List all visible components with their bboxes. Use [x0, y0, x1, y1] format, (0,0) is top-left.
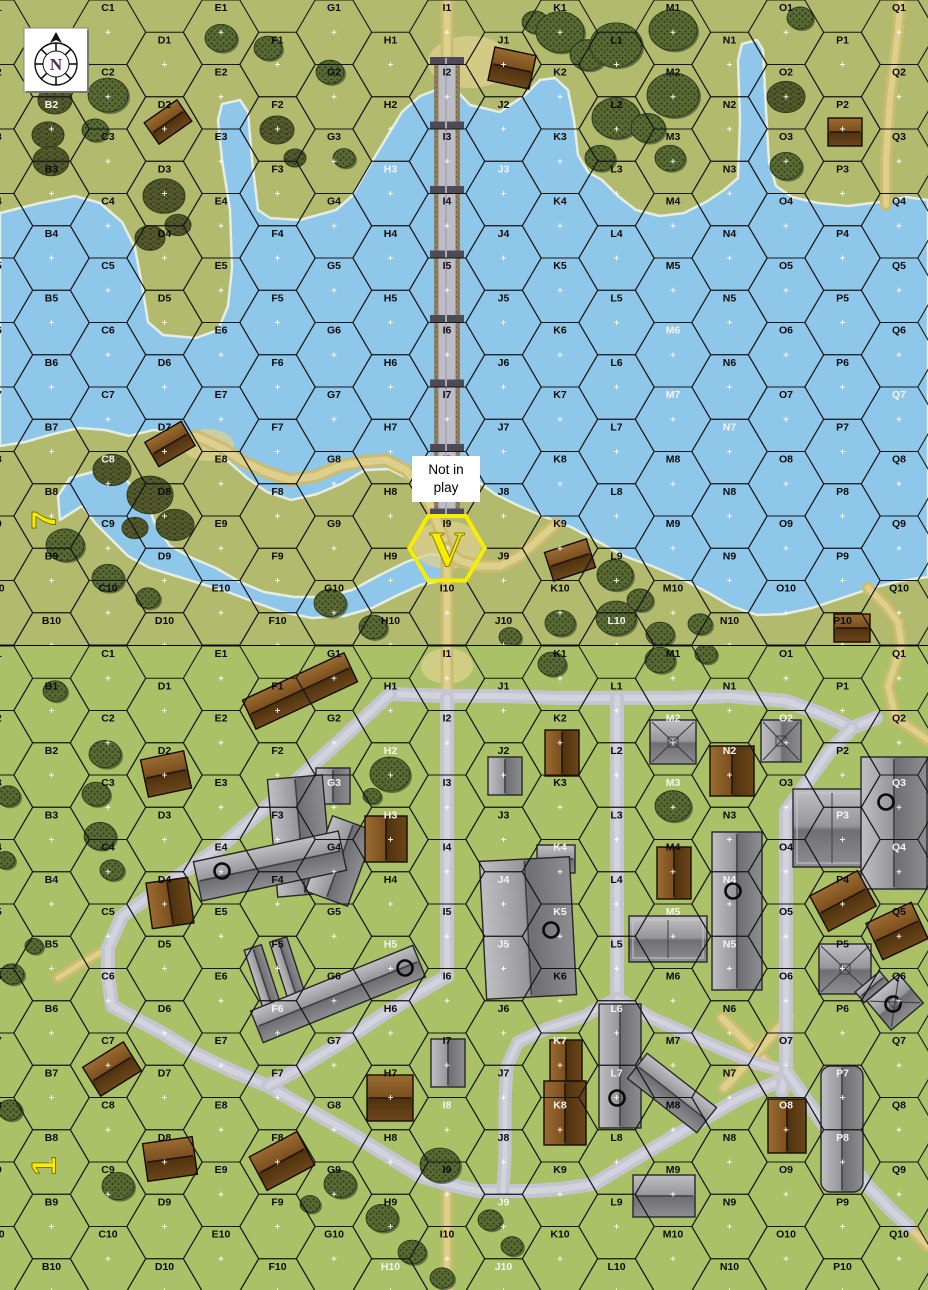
hex-label-I10: I10 — [440, 583, 455, 595]
hex-label-J6: J6 — [498, 1003, 510, 1015]
map-board-7[interactable]: A1A2A3A4A5A6A7A8A9A10B1B2B3B4B5B6B7B8B9B… — [0, 0, 928, 645]
hex-label-O10: O10 — [776, 1229, 796, 1241]
hex-label-H7: H7 — [384, 421, 398, 433]
hex-label-N2: N2 — [723, 745, 737, 757]
hex-label-C9: C9 — [101, 1164, 115, 1176]
hex-label-G5: G5 — [327, 906, 341, 918]
hex-label-J2: J2 — [498, 99, 510, 111]
hex-label-A2: A2 — [0, 67, 2, 79]
hex-label-N10: N10 — [720, 615, 739, 627]
hex-label-J4: J4 — [498, 874, 510, 886]
hex-label-A2: A2 — [0, 713, 2, 725]
hex-label-N5: N5 — [723, 938, 737, 950]
hex-label-D6: D6 — [158, 357, 172, 369]
hex-label-L9: L9 — [610, 1196, 622, 1208]
hex-label-M1: M1 — [666, 648, 681, 660]
hex-label-B2: B2 — [45, 99, 59, 111]
hex-label-J1: J1 — [498, 34, 510, 46]
hex-label-L8: L8 — [610, 1132, 622, 1144]
hex-label-K6: K6 — [553, 971, 567, 983]
hex-label-E10: E10 — [212, 583, 231, 595]
hex-label-H5: H5 — [384, 292, 398, 304]
hex-label-M8: M8 — [666, 454, 681, 466]
hex-grid — [0, 646, 928, 1290]
hex-label-N3: N3 — [723, 163, 737, 175]
hex-label-E5: E5 — [215, 906, 228, 918]
hex-label-N8: N8 — [723, 486, 737, 498]
board-number-7: 7 — [26, 511, 64, 530]
hex-label-D9: D9 — [158, 550, 172, 562]
hex-label-P1: P1 — [836, 680, 849, 692]
hex-label-C6: C6 — [101, 325, 115, 337]
hex-label-H7: H7 — [384, 1067, 398, 1079]
hex-label-D6: D6 — [158, 1003, 172, 1015]
hex-label-J3: J3 — [498, 809, 510, 821]
hex-label-C7: C7 — [101, 1035, 115, 1047]
hex-label-M2: M2 — [666, 713, 681, 725]
hex-label-O1: O1 — [779, 2, 793, 14]
hex-label-Q2: Q2 — [892, 67, 906, 79]
hex-label-A8: A8 — [0, 454, 2, 466]
hex-label-P5: P5 — [836, 938, 849, 950]
hex-label-Q4: Q4 — [892, 196, 906, 208]
wargame-map: A1A2A3A4A5A6A7A8A9A10B1B2B3B4B5B6B7B8B9B… — [0, 0, 928, 1290]
hex-label-D4: D4 — [158, 228, 172, 240]
not-in-play-label: Not in — [428, 462, 463, 477]
hex-label-A7: A7 — [0, 1035, 2, 1047]
hex-label-L4: L4 — [610, 228, 622, 240]
hex-label-P6: P6 — [836, 357, 849, 369]
hex-label-O10: O10 — [776, 583, 796, 595]
hex-label-C10: C10 — [98, 1229, 117, 1241]
hex-label-I6: I6 — [443, 325, 452, 337]
hex-label-F9: F9 — [271, 1196, 283, 1208]
hex-label-Q2: Q2 — [892, 713, 906, 725]
hex-label-O8: O8 — [779, 1100, 793, 1112]
hex-label-H1: H1 — [384, 34, 398, 46]
hex-label-C8: C8 — [101, 454, 115, 466]
hex-label-M3: M3 — [666, 131, 681, 143]
hex-label-E10: E10 — [212, 1229, 231, 1241]
hex-label-G4: G4 — [327, 196, 341, 208]
hex-label-E5: E5 — [215, 260, 228, 272]
hex-label-N2: N2 — [723, 99, 737, 111]
hex-label-K4: K4 — [553, 196, 567, 208]
hex-label-O9: O9 — [779, 518, 793, 530]
hex-label-L5: L5 — [610, 938, 622, 950]
hex-label-D5: D5 — [158, 938, 172, 950]
hex-label-P4: P4 — [836, 228, 849, 240]
hex-label-P2: P2 — [836, 99, 849, 111]
hex-label-K4: K4 — [553, 842, 567, 854]
hex-label-F7: F7 — [271, 421, 283, 433]
hex-label-M8: M8 — [666, 1100, 681, 1112]
hex-label-F9: F9 — [271, 550, 283, 562]
hex-label-J8: J8 — [498, 486, 510, 498]
hex-label-H10: H10 — [381, 1261, 400, 1273]
hex-label-O7: O7 — [779, 1035, 793, 1047]
hex-label-N8: N8 — [723, 1132, 737, 1144]
hex-label-Q9: Q9 — [892, 518, 906, 530]
hex-label-A1: A1 — [0, 2, 2, 14]
hex-label-A4: A4 — [0, 842, 2, 854]
hex-label-Q7: Q7 — [892, 389, 906, 401]
hex-label-I6: I6 — [443, 971, 452, 983]
hex-label-N6: N6 — [723, 357, 737, 369]
hex-label-M5: M5 — [666, 260, 681, 272]
hex-label-F6: F6 — [271, 1003, 283, 1015]
hex-label-B7: B7 — [45, 421, 59, 433]
hex-label-D3: D3 — [158, 809, 172, 821]
hex-label-G8: G8 — [327, 454, 341, 466]
hex-label-K6: K6 — [553, 325, 567, 337]
hex-label-P7: P7 — [836, 421, 849, 433]
hex-label-J4: J4 — [498, 228, 510, 240]
hex-label-A6: A6 — [0, 971, 2, 983]
hex-label-K9: K9 — [553, 518, 567, 530]
hex-label-C4: C4 — [101, 196, 115, 208]
hex-label-H5: H5 — [384, 938, 398, 950]
hex-label-E1: E1 — [215, 2, 228, 14]
hex-label-P4: P4 — [836, 874, 849, 886]
victory-hex-letter: V — [429, 520, 465, 576]
hex-label-O2: O2 — [779, 713, 793, 725]
hex-label-D7: D7 — [158, 421, 172, 433]
hex-label-L6: L6 — [610, 357, 622, 369]
hex-label-N7: N7 — [723, 421, 737, 433]
hex-label-N9: N9 — [723, 550, 737, 562]
hex-label-P5: P5 — [836, 292, 849, 304]
hex-label-H6: H6 — [384, 1003, 398, 1015]
hex-label-D2: D2 — [158, 99, 172, 111]
hex-label-O4: O4 — [779, 196, 793, 208]
hex-label-I9: I9 — [443, 1164, 452, 1176]
hex-label-E2: E2 — [215, 67, 228, 79]
hex-label-I5: I5 — [443, 260, 452, 272]
hex-label-G6: G6 — [327, 971, 341, 983]
hex-label-B9: B9 — [45, 1196, 59, 1208]
hex-label-H9: H9 — [384, 1196, 398, 1208]
hex-label-Q10: Q10 — [889, 583, 909, 595]
hex-label-B3: B3 — [45, 809, 59, 821]
hex-label-I2: I2 — [443, 713, 452, 725]
hex-label-C2: C2 — [101, 713, 115, 725]
hex-label-Q4: Q4 — [892, 842, 906, 854]
hex-label-F7: F7 — [271, 1067, 283, 1079]
hex-label-E3: E3 — [215, 131, 228, 143]
hex-label-F1: F1 — [271, 680, 283, 692]
hex-label-G7: G7 — [327, 1035, 341, 1047]
hex-label-D4: D4 — [158, 874, 172, 886]
hex-label-D9: D9 — [158, 1196, 172, 1208]
hex-label-M6: M6 — [666, 971, 681, 983]
hex-label-D1: D1 — [158, 34, 172, 46]
hex-label-J1: J1 — [498, 680, 510, 692]
hex-label-Q8: Q8 — [892, 454, 906, 466]
hex-label-N5: N5 — [723, 292, 737, 304]
hex-label-B5: B5 — [45, 938, 59, 950]
hex-label-A5: A5 — [0, 260, 2, 272]
hex-label-J9: J9 — [498, 1196, 510, 1208]
hex-label-B2: B2 — [45, 745, 59, 757]
hex-label-G1: G1 — [327, 648, 341, 660]
hex-label-E2: E2 — [215, 713, 228, 725]
hex-label-M10: M10 — [663, 1229, 684, 1241]
hex-label-C10: C10 — [98, 583, 117, 595]
hex-label-A6: A6 — [0, 325, 2, 337]
hex-label-O5: O5 — [779, 260, 793, 272]
hex-label-I4: I4 — [443, 842, 452, 854]
hex-label-E4: E4 — [215, 196, 228, 208]
hex-label-Q3: Q3 — [892, 777, 906, 789]
hex-label-P9: P9 — [836, 1196, 849, 1208]
hex-label-L10: L10 — [607, 1261, 625, 1273]
hex-label-M4: M4 — [666, 196, 681, 208]
hex-label-E9: E9 — [215, 518, 228, 530]
hex-label-K3: K3 — [553, 131, 567, 143]
hex-label-L2: L2 — [610, 745, 622, 757]
hex-label-J8: J8 — [498, 1132, 510, 1144]
hex-label-O1: O1 — [779, 648, 793, 660]
hex-label-N3: N3 — [723, 809, 737, 821]
hex-label-I8: I8 — [443, 1100, 452, 1112]
map-board-1[interactable]: A1A2A3A4A5A6A7A8A9A10B1B2B3B4B5B6B7B8B9B… — [0, 645, 928, 1290]
hex-label-L1: L1 — [610, 34, 622, 46]
hex-label-H1: H1 — [384, 680, 398, 692]
hex-label-P10: P10 — [833, 1261, 852, 1273]
hex-label-K2: K2 — [553, 67, 567, 79]
hex-label-I1: I1 — [443, 2, 452, 14]
hex-label-L4: L4 — [610, 874, 622, 886]
hex-label-O6: O6 — [779, 971, 793, 983]
hex-label-M1: M1 — [666, 2, 681, 14]
hex-label-Q8: Q8 — [892, 1100, 906, 1112]
hex-label-H3: H3 — [384, 809, 398, 821]
hex-label-C1: C1 — [101, 648, 115, 660]
hex-label-L3: L3 — [610, 809, 622, 821]
hex-label-B9: B9 — [45, 550, 59, 562]
hex-label-F4: F4 — [271, 874, 283, 886]
hex-label-G5: G5 — [327, 260, 341, 272]
hex-label-A3: A3 — [0, 777, 2, 789]
hex-label-H6: H6 — [384, 357, 398, 369]
hex-label-E9: E9 — [215, 1164, 228, 1176]
hex-label-E8: E8 — [215, 1100, 228, 1112]
hex-label-C9: C9 — [101, 518, 115, 530]
hex-label-E7: E7 — [215, 1035, 228, 1047]
hex-label-L5: L5 — [610, 292, 622, 304]
hex-label-H3: H3 — [384, 163, 398, 175]
hex-label-B7: B7 — [45, 1067, 59, 1079]
hex-label-D2: D2 — [158, 745, 172, 757]
hex-label-C8: C8 — [101, 1100, 115, 1112]
hex-label-A9: A9 — [0, 518, 2, 530]
hex-label-K10: K10 — [550, 583, 569, 595]
compass-n-label: N — [50, 55, 63, 74]
hex-label-G10: G10 — [324, 1229, 344, 1241]
hex-label-A10: A10 — [0, 1229, 5, 1241]
hex-label-F3: F3 — [271, 809, 283, 821]
hex-label-D8: D8 — [158, 486, 172, 498]
hex-label-O3: O3 — [779, 131, 793, 143]
hex-label-H9: H9 — [384, 550, 398, 562]
hex-label-K1: K1 — [553, 648, 567, 660]
hex-label-M5: M5 — [666, 906, 681, 918]
hex-label-F2: F2 — [271, 99, 283, 111]
hex-label-G9: G9 — [327, 518, 341, 530]
hex-label-L7: L7 — [610, 421, 622, 433]
hex-label-G8: G8 — [327, 1100, 341, 1112]
hex-label-F10: F10 — [268, 1261, 286, 1273]
hex-label-G4: G4 — [327, 842, 341, 854]
hex-label-M7: M7 — [666, 1035, 681, 1047]
hex-label-F8: F8 — [271, 486, 283, 498]
hex-label-A9: A9 — [0, 1164, 2, 1176]
hex-label-I4: I4 — [443, 196, 452, 208]
hex-label-M2: M2 — [666, 67, 681, 79]
hex-label-Q1: Q1 — [892, 2, 906, 14]
hex-label-P9: P9 — [836, 550, 849, 562]
hex-label-F2: F2 — [271, 745, 283, 757]
hex-label-N4: N4 — [723, 228, 737, 240]
hex-label-F1: F1 — [271, 34, 283, 46]
hex-label-I1: I1 — [443, 648, 452, 660]
hex-label-O2: O2 — [779, 67, 793, 79]
board-number-1: 1 — [26, 1157, 64, 1176]
hex-label-G1: G1 — [327, 2, 341, 14]
hex-label-Q5: Q5 — [892, 260, 906, 272]
hex-label-E7: E7 — [215, 389, 228, 401]
hex-label-F10: F10 — [268, 615, 286, 627]
hex-label-A8: A8 — [0, 1100, 2, 1112]
hex-label-M9: M9 — [666, 518, 681, 530]
hex-label-Q3: Q3 — [892, 131, 906, 143]
hex-label-D10: D10 — [155, 615, 174, 627]
hex-label-L6: L6 — [610, 1003, 622, 1015]
hex-label-J10: J10 — [495, 1261, 513, 1273]
hex-label-J10: J10 — [495, 615, 513, 627]
hex-label-N4: N4 — [723, 874, 737, 886]
hex-label-I2: I2 — [443, 67, 452, 79]
hex-label-G7: G7 — [327, 389, 341, 401]
hex-label-O7: O7 — [779, 389, 793, 401]
hex-label-D1: D1 — [158, 680, 172, 692]
hex-label-H8: H8 — [384, 486, 398, 498]
hex-label-P8: P8 — [836, 486, 849, 498]
hex-label-C5: C5 — [101, 260, 115, 272]
hex-label-M10: M10 — [663, 583, 684, 595]
hex-label-K8: K8 — [553, 1100, 567, 1112]
hex-label-N7: N7 — [723, 1067, 737, 1079]
hex-label-J3: J3 — [498, 163, 510, 175]
hex-label-B6: B6 — [45, 357, 59, 369]
hex-label-A5: A5 — [0, 906, 2, 918]
hex-label-B5: B5 — [45, 292, 59, 304]
hex-label-K1: K1 — [553, 2, 567, 14]
hex-label-D5: D5 — [158, 292, 172, 304]
hex-label-I5: I5 — [443, 906, 452, 918]
hex-label-M4: M4 — [666, 842, 681, 854]
hex-label-J7: J7 — [498, 421, 510, 433]
board-7-svg: A1A2A3A4A5A6A7A8A9A10B1B2B3B4B5B6B7B8B9B… — [0, 0, 928, 645]
hex-label-F6: F6 — [271, 357, 283, 369]
hex-label-H2: H2 — [384, 745, 398, 757]
hex-label-P1: P1 — [836, 34, 849, 46]
hex-label-M9: M9 — [666, 1164, 681, 1176]
hex-label-N1: N1 — [723, 34, 737, 46]
hex-label-I3: I3 — [443, 777, 452, 789]
hex-label-B4: B4 — [45, 874, 59, 886]
hex-label-G10: G10 — [324, 583, 344, 595]
hex-label-Q9: Q9 — [892, 1164, 906, 1176]
board-1-svg: A1A2A3A4A5A6A7A8A9A10B1B2B3B4B5B6B7B8B9B… — [0, 646, 928, 1290]
hex-label-Q7: Q7 — [892, 1035, 906, 1047]
hex-label-C5: C5 — [101, 906, 115, 918]
hex-label-K2: K2 — [553, 713, 567, 725]
hex-label-A4: A4 — [0, 196, 2, 208]
hex-label-M6: M6 — [666, 325, 681, 337]
hex-label-E4: E4 — [215, 842, 228, 854]
hex-label-B1: B1 — [45, 680, 59, 692]
compass-rose: N — [24, 28, 88, 92]
hex-label-L1: L1 — [610, 680, 622, 692]
hex-label-C1: C1 — [101, 2, 115, 14]
hex-label-K8: K8 — [553, 454, 567, 466]
hex-label-L8: L8 — [610, 486, 622, 498]
not-in-play-label: play — [434, 480, 459, 495]
hex-label-C3: C3 — [101, 777, 115, 789]
hex-label-K7: K7 — [553, 1035, 567, 1047]
hex-label-I3: I3 — [443, 131, 452, 143]
hex-label-H8: H8 — [384, 1132, 398, 1144]
hex-label-O3: O3 — [779, 777, 793, 789]
hex-label-A1: A1 — [0, 648, 2, 660]
hex-label-Q10: Q10 — [889, 1229, 909, 1241]
hex-label-C7: C7 — [101, 389, 115, 401]
hex-label-G6: G6 — [327, 325, 341, 337]
hex-label-M7: M7 — [666, 389, 681, 401]
hex-label-F5: F5 — [271, 292, 283, 304]
hex-label-D7: D7 — [158, 1067, 172, 1079]
overlay-layer: 1 — [26, 1157, 64, 1176]
hex-label-E6: E6 — [215, 325, 228, 337]
hex-label-F8: F8 — [271, 1132, 283, 1144]
hex-label-P8: P8 — [836, 1132, 849, 1144]
hex-label-J9: J9 — [498, 550, 510, 562]
hex-label-E8: E8 — [215, 454, 228, 466]
hex-label-E3: E3 — [215, 777, 228, 789]
hex-label-P7: P7 — [836, 1067, 849, 1079]
hex-label-G3: G3 — [327, 131, 341, 143]
hex-label-A7: A7 — [0, 389, 2, 401]
hex-label-L7: L7 — [610, 1067, 622, 1079]
hex-label-O5: O5 — [779, 906, 793, 918]
hex-label-L9: L9 — [610, 550, 622, 562]
hex-label-Q6: Q6 — [892, 325, 906, 337]
hex-label-C3: C3 — [101, 131, 115, 143]
hex-label-B10: B10 — [42, 615, 61, 627]
hex-label-G3: G3 — [327, 777, 341, 789]
hex-label-E6: E6 — [215, 971, 228, 983]
hex-label-L2: L2 — [610, 99, 622, 111]
hex-label-I7: I7 — [443, 1035, 452, 1047]
hex-label-Q5: Q5 — [892, 906, 906, 918]
hex-label-H2: H2 — [384, 99, 398, 111]
hex-label-F4: F4 — [271, 228, 283, 240]
hex-label-J7: J7 — [498, 1067, 510, 1079]
hex-label-B8: B8 — [45, 1132, 59, 1144]
hex-label-I10: I10 — [440, 1229, 455, 1241]
